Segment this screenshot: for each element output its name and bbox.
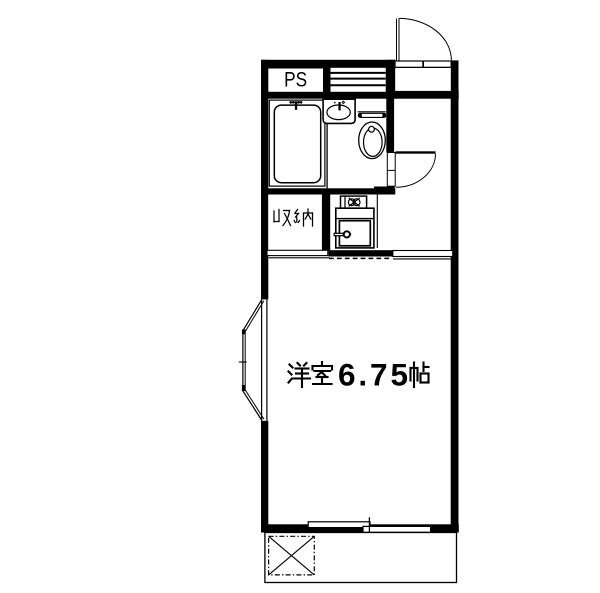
svg-text:6.75: 6.75 — [338, 357, 408, 393]
svg-text:PS: PS — [284, 69, 307, 92]
